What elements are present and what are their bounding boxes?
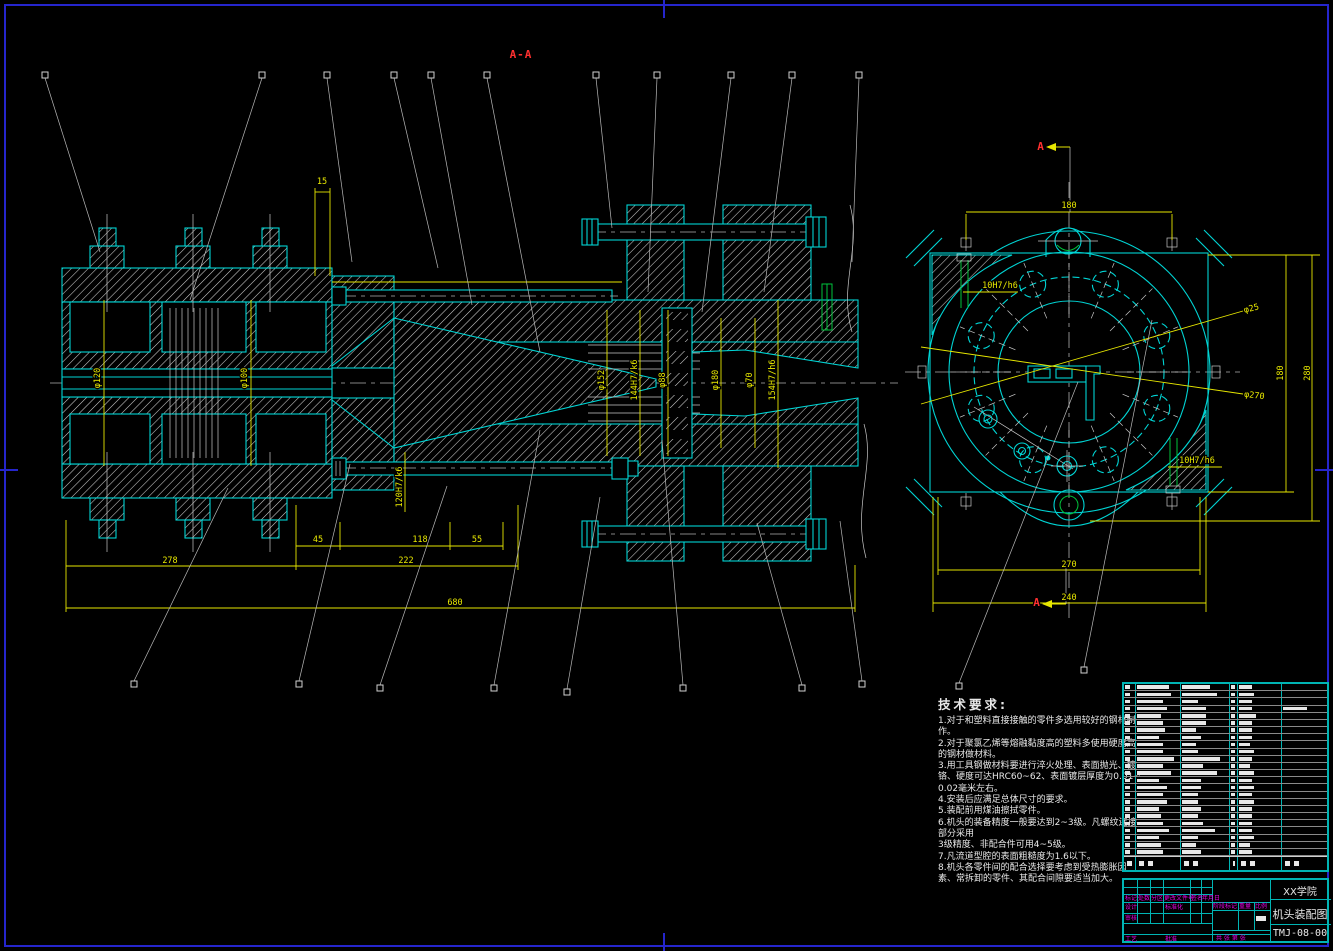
parts-cell bbox=[1230, 806, 1238, 812]
parts-cell bbox=[1124, 713, 1136, 719]
parts-cell bbox=[1282, 842, 1327, 848]
parts-cell bbox=[1238, 820, 1282, 826]
parts-cell bbox=[1230, 706, 1238, 712]
parts-row bbox=[1124, 820, 1327, 827]
end-view bbox=[905, 143, 1320, 620]
parts-cell bbox=[1238, 698, 1282, 704]
dimension-label: φ70 bbox=[745, 372, 755, 387]
title-block: 标记 处数 分区 更改文件号 签名 年月日 设计 标准化 审核 工艺 批准 阶段… bbox=[1122, 878, 1329, 943]
parts-cell bbox=[1230, 777, 1238, 783]
dimension-label: 15 bbox=[317, 177, 327, 187]
parts-cell bbox=[1136, 756, 1181, 762]
tech-requirement-line: 铬、硬度可达HRC60~62、表面镀层厚度为0.01~ bbox=[938, 772, 1124, 783]
parts-cell bbox=[1282, 784, 1327, 790]
tb-drawing-title: 机头装配图 bbox=[1271, 906, 1329, 922]
parts-cell bbox=[1282, 827, 1327, 833]
parts-cell bbox=[1230, 784, 1238, 790]
parts-cell bbox=[1181, 691, 1230, 697]
parts-cell bbox=[1282, 813, 1327, 819]
parts-cell bbox=[1136, 770, 1181, 776]
parts-cell bbox=[1136, 792, 1181, 798]
parts-cell bbox=[1124, 799, 1136, 805]
parts-cell bbox=[1230, 799, 1238, 805]
parts-cell bbox=[1181, 842, 1230, 848]
parts-cell bbox=[1136, 763, 1181, 769]
parts-row bbox=[1124, 713, 1327, 720]
parts-row bbox=[1124, 720, 1327, 727]
parts-cell bbox=[1136, 713, 1181, 719]
technical-requirements-body: 1.对于和塑料直接接触的零件多选用较好的钢材制作。2.对于聚氯乙烯等熔融黏度高的… bbox=[938, 716, 1124, 885]
section-arrow-a-bottom: A bbox=[1033, 596, 1041, 609]
parts-cell bbox=[1124, 706, 1136, 712]
parts-cell bbox=[1181, 770, 1230, 776]
tech-requirement-line: 6.机头的装备精度一般要达到2~3级。凡螺纹连接 bbox=[938, 818, 1124, 829]
parts-cell bbox=[1124, 842, 1136, 848]
parts-cell bbox=[1136, 749, 1181, 755]
parts-cell bbox=[1124, 727, 1136, 733]
parts-cell bbox=[1230, 827, 1238, 833]
parts-cell bbox=[1282, 706, 1327, 712]
parts-cell bbox=[1136, 706, 1181, 712]
parts-cell bbox=[1136, 813, 1181, 819]
tb-label-sheets: 共 张 第 张 bbox=[1216, 935, 1246, 942]
technical-requirements: 技术要求: 1.对于和塑料直接接触的零件多选用较好的钢材制作。2.对于聚氯乙烯等… bbox=[938, 694, 1124, 885]
parts-row bbox=[1124, 835, 1327, 842]
parts-cell bbox=[1238, 684, 1282, 690]
dimension-label: 280 bbox=[1303, 365, 1313, 380]
dimension-label: 118 bbox=[412, 535, 427, 545]
parts-cell bbox=[1282, 698, 1327, 704]
radial-line bbox=[986, 289, 1028, 331]
parts-cell bbox=[1282, 792, 1327, 798]
parts-row bbox=[1124, 698, 1327, 705]
tb-label-mark: 标记 bbox=[1125, 895, 1137, 902]
parts-cell bbox=[1124, 835, 1136, 841]
parts-row bbox=[1124, 813, 1327, 820]
parts-cell bbox=[1181, 684, 1230, 690]
tb-label-date: 年月日 bbox=[1202, 895, 1220, 902]
tech-requirement-line: 素、常拆卸的零件、其配合间隙要适当加大。 bbox=[938, 874, 1124, 885]
parts-cell bbox=[1238, 777, 1282, 783]
parts-cell bbox=[1238, 784, 1282, 790]
parts-cell bbox=[1282, 756, 1327, 762]
parts-cell bbox=[1124, 734, 1136, 740]
parts-cell bbox=[1181, 849, 1230, 855]
tb-label-approve: 批准 bbox=[1165, 936, 1177, 943]
parts-cell bbox=[1181, 749, 1230, 755]
parts-cell bbox=[1124, 849, 1136, 855]
parts-cell bbox=[1238, 849, 1282, 855]
parts-cell bbox=[1230, 813, 1238, 819]
tech-requirement-line: 部分采用 bbox=[938, 829, 1124, 840]
parts-cell bbox=[1124, 777, 1136, 783]
tech-requirement-line: 5.装配前用煤油擦拭零件。 bbox=[938, 806, 1124, 817]
parts-row bbox=[1124, 763, 1327, 770]
tech-requirement-line: 1.对于和塑料直接接触的零件多选用较好的钢材制 bbox=[938, 716, 1124, 727]
parts-cell bbox=[1181, 820, 1230, 826]
tech-requirement-line: 2.对于聚氯乙烯等熔融黏度高的塑料多使用硬度高 bbox=[938, 739, 1124, 750]
parts-cell bbox=[1238, 749, 1282, 755]
parts-cell bbox=[1238, 806, 1282, 812]
parts-cell bbox=[1230, 727, 1238, 733]
parts-cell bbox=[1181, 835, 1230, 841]
radial-line bbox=[1110, 413, 1152, 455]
parts-cell bbox=[1282, 684, 1327, 690]
parts-cell bbox=[1136, 720, 1181, 726]
parts-cell bbox=[1238, 827, 1282, 833]
parts-cell bbox=[1181, 698, 1230, 704]
parts-row bbox=[1124, 734, 1327, 741]
parts-cell bbox=[1282, 734, 1327, 740]
dimension-label: 55 bbox=[472, 535, 482, 545]
drawing-sheet: A-AAA15φ120φ100φ152144H7/k6φ88φ180φ70154… bbox=[0, 0, 1333, 951]
parts-row bbox=[1124, 684, 1327, 691]
parts-cell bbox=[1238, 720, 1282, 726]
dimension-label: φ25 bbox=[1243, 302, 1260, 315]
parts-cell bbox=[1282, 720, 1327, 726]
parts-cell bbox=[1238, 713, 1282, 719]
dimension-label: 680 bbox=[447, 598, 462, 608]
parts-cell bbox=[1136, 741, 1181, 747]
dimension-label: 154H7/h6 bbox=[768, 360, 778, 401]
parts-cell bbox=[1124, 784, 1136, 790]
parts-row bbox=[1124, 827, 1327, 834]
tb-drawing-number: TMJ-08-00 bbox=[1271, 928, 1329, 939]
parts-cell bbox=[1136, 777, 1181, 783]
parts-cell bbox=[1230, 698, 1238, 704]
parts-row bbox=[1124, 784, 1327, 791]
parts-cell bbox=[1282, 835, 1327, 841]
parts-cell bbox=[1238, 813, 1282, 819]
tech-requirement-line: 3.用工具钢做材料要进行淬火处理、表面抛光、镀 bbox=[938, 761, 1124, 772]
parts-cell bbox=[1238, 842, 1282, 848]
parts-cell bbox=[1124, 756, 1136, 762]
parts-cell bbox=[1238, 763, 1282, 769]
parts-row bbox=[1124, 741, 1327, 748]
parts-cell bbox=[1181, 706, 1230, 712]
tech-requirement-line: 的钢材做材料。 bbox=[938, 750, 1124, 761]
tech-requirement-line: 3级精度、非配合件可用4~5级。 bbox=[938, 840, 1124, 851]
parts-cell bbox=[1181, 713, 1230, 719]
tb-label-scale: 比例 bbox=[1255, 903, 1267, 910]
section-arrow-a-top: A bbox=[1037, 140, 1045, 153]
parts-cell bbox=[1181, 799, 1230, 805]
parts-cell bbox=[1136, 820, 1181, 826]
tb-label-change-file: 更改文件号 bbox=[1164, 895, 1194, 902]
parts-row bbox=[1124, 792, 1327, 799]
parts-cell bbox=[1124, 806, 1136, 812]
parts-cell bbox=[1124, 763, 1136, 769]
parts-cell bbox=[1282, 691, 1327, 697]
parts-cell bbox=[1181, 784, 1230, 790]
parts-cell bbox=[1238, 691, 1282, 697]
parts-cell bbox=[1181, 813, 1230, 819]
parts-cell bbox=[1238, 727, 1282, 733]
technical-requirements-title: 技术要求: bbox=[938, 694, 1124, 713]
cad-sheet-page: { "colors":{"cyan":"#00d4d4","yellow":"#… bbox=[0, 0, 1333, 951]
parts-cell bbox=[1230, 720, 1238, 726]
parts-cell bbox=[1181, 792, 1230, 798]
tb-label-count: 处数 bbox=[1138, 895, 1150, 902]
parts-cell bbox=[1282, 820, 1327, 826]
parts-cell bbox=[1230, 792, 1238, 798]
parts-cell bbox=[1282, 799, 1327, 805]
parts-cell bbox=[1136, 734, 1181, 740]
parts-cell bbox=[1181, 734, 1230, 740]
parts-cell bbox=[1124, 749, 1136, 755]
parts-row bbox=[1124, 756, 1327, 763]
dimension-label: φ180 bbox=[711, 370, 721, 390]
parts-cell bbox=[1181, 777, 1230, 783]
parts-cell bbox=[1238, 756, 1282, 762]
dimension-label: 10H7/h6 bbox=[1179, 456, 1215, 466]
parts-cell bbox=[1181, 827, 1230, 833]
dimension-label: φ88 bbox=[658, 372, 668, 387]
tb-label-process: 工艺 bbox=[1125, 936, 1137, 943]
parts-cell bbox=[1282, 777, 1327, 783]
section-label-aa: A-A bbox=[510, 48, 533, 61]
dimension-label: 240 bbox=[1061, 593, 1076, 603]
parts-cell bbox=[1230, 691, 1238, 697]
parts-cell bbox=[1230, 835, 1238, 841]
parts-cell bbox=[1136, 842, 1181, 848]
parts-cell bbox=[1136, 727, 1181, 733]
parts-row bbox=[1124, 727, 1327, 734]
parts-cell bbox=[1124, 813, 1136, 819]
parts-cell bbox=[1230, 734, 1238, 740]
parts-cell bbox=[1124, 792, 1136, 798]
dimension-label: φ270 bbox=[1243, 390, 1265, 402]
tb-label-weight: 重量 bbox=[1239, 903, 1251, 910]
dimension-label: 180 bbox=[1061, 201, 1076, 211]
parts-list-rows bbox=[1124, 684, 1327, 856]
parts-cell bbox=[1124, 691, 1136, 697]
parts-cell bbox=[1136, 835, 1181, 841]
parts-cell bbox=[1136, 799, 1181, 805]
tech-requirement-line: 4.安装后应满足总体尺寸的要求。 bbox=[938, 795, 1124, 806]
parts-cell bbox=[1136, 849, 1181, 855]
parts-cell bbox=[1124, 720, 1136, 726]
parts-cell bbox=[1136, 698, 1181, 704]
parts-cell bbox=[1181, 741, 1230, 747]
parts-row bbox=[1124, 706, 1327, 713]
parts-row bbox=[1124, 799, 1327, 806]
parts-cell bbox=[1230, 756, 1238, 762]
parts-cell bbox=[1124, 684, 1136, 690]
parts-cell bbox=[1230, 713, 1238, 719]
parts-cell bbox=[1124, 827, 1136, 833]
radial-line bbox=[1110, 289, 1152, 331]
tb-company: XX学院 bbox=[1271, 883, 1329, 898]
parts-table-header bbox=[1124, 856, 1327, 870]
parts-cell bbox=[1230, 820, 1238, 826]
tech-requirement-line: 7.凡流道型腔的表面粗糙度为1.6以下。 bbox=[938, 852, 1124, 863]
parts-cell bbox=[1238, 835, 1282, 841]
parts-cell bbox=[1282, 713, 1327, 719]
parts-cell bbox=[1238, 741, 1282, 747]
parts-cell bbox=[1181, 727, 1230, 733]
parts-cell bbox=[1238, 734, 1282, 740]
parts-cell bbox=[1136, 806, 1181, 812]
tb-label-stage-mark: 阶段标记 bbox=[1213, 903, 1237, 910]
parts-cell bbox=[1230, 849, 1238, 855]
parts-cell bbox=[1124, 770, 1136, 776]
parts-cell bbox=[1181, 756, 1230, 762]
dimension-label: 120H7/k6 bbox=[395, 467, 405, 508]
dimension-label: φ152 bbox=[597, 370, 607, 390]
tb-label-zone: 分区 bbox=[1151, 895, 1163, 902]
parts-cell bbox=[1230, 741, 1238, 747]
dimension-label: 144H7/k6 bbox=[630, 360, 640, 401]
parts-cell bbox=[1282, 741, 1327, 747]
dimension-label: 278 bbox=[162, 556, 177, 566]
parts-cell bbox=[1230, 684, 1238, 690]
parts-cell bbox=[1230, 770, 1238, 776]
tb-label-standardization: 标准化 bbox=[1165, 904, 1183, 911]
parts-cell bbox=[1282, 763, 1327, 769]
parts-row bbox=[1124, 842, 1327, 849]
parts-cell bbox=[1282, 727, 1327, 733]
tb-label-design: 设计 bbox=[1125, 904, 1137, 911]
tech-requirement-line: 8.机头各零件间的配合选择要考虑到受热膨胀因 bbox=[938, 863, 1124, 874]
parts-cell bbox=[1238, 706, 1282, 712]
parts-cell bbox=[1181, 806, 1230, 812]
parts-cell bbox=[1238, 792, 1282, 798]
parts-cell bbox=[1238, 799, 1282, 805]
dimension-label: 10H7/h6 bbox=[982, 281, 1018, 291]
parts-cell bbox=[1124, 820, 1136, 826]
parts-cell bbox=[1230, 842, 1238, 848]
parts-cell bbox=[1181, 720, 1230, 726]
parts-cell bbox=[1282, 770, 1327, 776]
parts-cell bbox=[1124, 741, 1136, 747]
parts-row bbox=[1124, 777, 1327, 784]
parts-cell bbox=[1282, 849, 1327, 855]
dimension-label: φ100 bbox=[240, 368, 250, 388]
dimension-label: 45 bbox=[313, 535, 323, 545]
tb-label-audit: 审核 bbox=[1125, 915, 1137, 922]
parts-cell bbox=[1136, 691, 1181, 697]
parts-cell bbox=[1181, 763, 1230, 769]
parts-cell bbox=[1136, 784, 1181, 790]
parts-cell bbox=[1136, 827, 1181, 833]
parts-cell bbox=[1230, 749, 1238, 755]
parts-cell bbox=[1238, 770, 1282, 776]
parts-cell bbox=[1230, 763, 1238, 769]
tb-scale-value-redacted bbox=[1256, 916, 1266, 921]
parts-row bbox=[1124, 770, 1327, 777]
parts-cell bbox=[1124, 698, 1136, 704]
parts-list-table bbox=[1122, 682, 1329, 872]
parts-row bbox=[1124, 806, 1327, 813]
parts-cell bbox=[1282, 749, 1327, 755]
dimension-label: 270 bbox=[1061, 560, 1076, 570]
dimension-label: 222 bbox=[398, 556, 413, 566]
dimension-label: 180 bbox=[1276, 365, 1286, 380]
parts-row bbox=[1124, 749, 1327, 756]
dimension-label: φ120 bbox=[93, 368, 103, 388]
tech-requirement-line: 0.02毫米左右。 bbox=[938, 784, 1124, 795]
parts-cell bbox=[1282, 806, 1327, 812]
tech-requirement-line: 作。 bbox=[938, 727, 1124, 738]
parts-row bbox=[1124, 691, 1327, 698]
parts-cell bbox=[1136, 684, 1181, 690]
